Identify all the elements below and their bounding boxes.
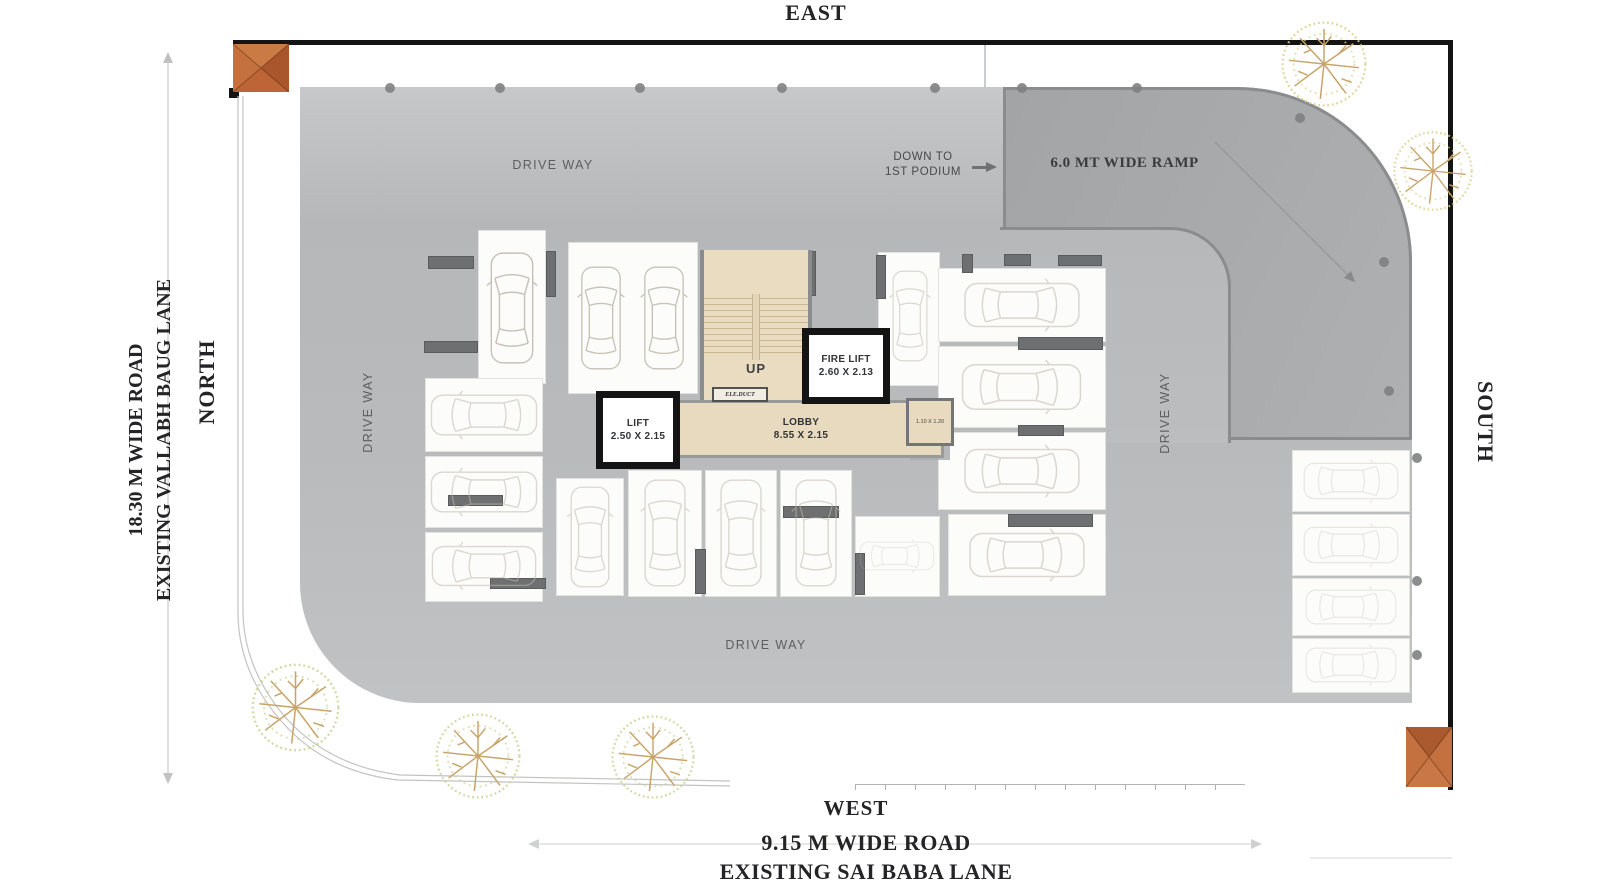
electrical-duct: ELE.DUCT: [712, 387, 768, 402]
column-bar: [783, 506, 839, 518]
compass-east: EAST: [746, 0, 886, 26]
lobby-label: LOBBY: [783, 416, 820, 429]
column-dot: [930, 83, 940, 93]
column-bar: [876, 255, 886, 299]
bottom-road-line2: EXISTING SAI BABA LANE: [566, 859, 1166, 885]
parking-stall: [705, 470, 777, 597]
driveway-label-left: DRIVE WAY: [360, 352, 376, 472]
gate-post-icon: [1406, 727, 1452, 787]
down-to-label: DOWN TO 1ST PODIUM: [862, 150, 984, 180]
ramp-label: 6.0 MT WIDE RAMP: [1037, 155, 1212, 172]
fire-lift-room: FIRE LIFT 2.60 X 2.13: [802, 328, 890, 404]
parking-stall: [425, 456, 543, 528]
column-dot: [777, 83, 787, 93]
column-bar: [1018, 425, 1064, 436]
column-bar: [1004, 254, 1031, 266]
column-dot: [1412, 576, 1422, 586]
left-road-label: 18.30 M WIDE ROAD EXISTING VALLABH BAUG …: [122, 170, 180, 710]
driveway-label-top: DRIVE WAY: [493, 158, 613, 172]
column-dot: [1412, 650, 1422, 660]
column-bar: [855, 553, 865, 595]
column-dot: [1412, 453, 1422, 463]
parking-stall: [855, 516, 940, 597]
parking-stall: [1292, 514, 1410, 576]
column-bar: [428, 256, 474, 269]
fire-lift-label: FIRE LIFT: [821, 353, 870, 366]
down-to-line1: DOWN TO: [862, 150, 984, 165]
parking-stall: [780, 470, 852, 597]
plot-border-top: [233, 40, 1452, 45]
left-road-line1: 18.30 M WIDE ROAD: [122, 170, 150, 710]
column-dot: [1132, 83, 1142, 93]
column-bar: [1018, 337, 1103, 350]
gate-post-icon: [233, 44, 289, 92]
driveway-label-bottom: DRIVE WAY: [706, 638, 826, 652]
ramp-edge-line: [984, 44, 986, 87]
bottom-road-line1: 9.15 M WIDE ROAD: [566, 830, 1166, 856]
tree-icon: [613, 717, 694, 798]
column-bar: [424, 341, 478, 353]
parking-stall: [938, 346, 1106, 428]
column-bar: [448, 495, 503, 506]
column-dot: [1384, 386, 1394, 396]
column-dot: [385, 83, 395, 93]
down-to-line2: 1ST PODIUM: [862, 165, 984, 180]
parking-stall: [1292, 638, 1410, 693]
plot-border-right: [1448, 40, 1453, 790]
down-arrow-icon: [972, 166, 986, 169]
parking-stall: [568, 242, 698, 394]
parking-stall: [1292, 450, 1410, 512]
column-bar: [1008, 514, 1093, 527]
column-dot: [495, 83, 505, 93]
compass-south: SOUTH: [1471, 362, 1499, 482]
staircase: UP: [700, 250, 812, 402]
left-road-line2: EXISTING VALLABH BAUG LANE: [150, 170, 178, 710]
column-dot: [635, 83, 645, 93]
compass-north: NORTH: [193, 322, 221, 442]
compass-west: WEST: [566, 796, 1146, 821]
lift-label: LIFT: [627, 417, 649, 430]
column-bar: [490, 578, 546, 589]
stair-up-label: UP: [704, 361, 808, 376]
lobby-size: 8.55 X 2.15: [774, 429, 828, 442]
tree-icon: [253, 665, 339, 751]
parking-stall: [1292, 578, 1410, 636]
column-bar: [695, 549, 706, 594]
fire-lift-size: 2.60 X 2.13: [819, 366, 873, 379]
column-bar: [962, 254, 973, 273]
small-duct-room: 1.10 X 1.20: [906, 398, 954, 446]
parking-stall: [938, 432, 1106, 510]
podium-floor-plan: UP ELE.DUCT LOBBY 8.55 X 2.15 LIFT 2.50 …: [0, 0, 1600, 889]
lift-room: LIFT 2.50 X 2.15: [596, 391, 680, 469]
driveway-label-right: DRIVE WAY: [1157, 353, 1173, 473]
column-dot: [1295, 113, 1305, 123]
parking-stall: [478, 230, 546, 384]
lift-size: 2.50 X 2.15: [611, 430, 665, 443]
parking-stall: [938, 268, 1106, 342]
parking-stall: [425, 378, 543, 452]
column-dot: [1017, 83, 1027, 93]
road-tick-line: [855, 784, 1245, 790]
parking-stall: [556, 478, 624, 596]
tree-icon: [437, 715, 520, 798]
column-dot: [1379, 257, 1389, 267]
ele-duct-label: ELE.DUCT: [725, 392, 755, 398]
stair-divider: [752, 294, 760, 360]
parking-stall: [425, 532, 543, 602]
column-bar: [546, 251, 556, 297]
tree-icon: [1394, 132, 1471, 209]
tree-icon: [1283, 23, 1366, 106]
column-bar: [1058, 255, 1102, 266]
duct-size-label: 1.10 X 1.20: [916, 419, 944, 425]
lobby: LOBBY 8.55 X 2.15: [658, 400, 944, 458]
parking-stall: [628, 470, 702, 597]
